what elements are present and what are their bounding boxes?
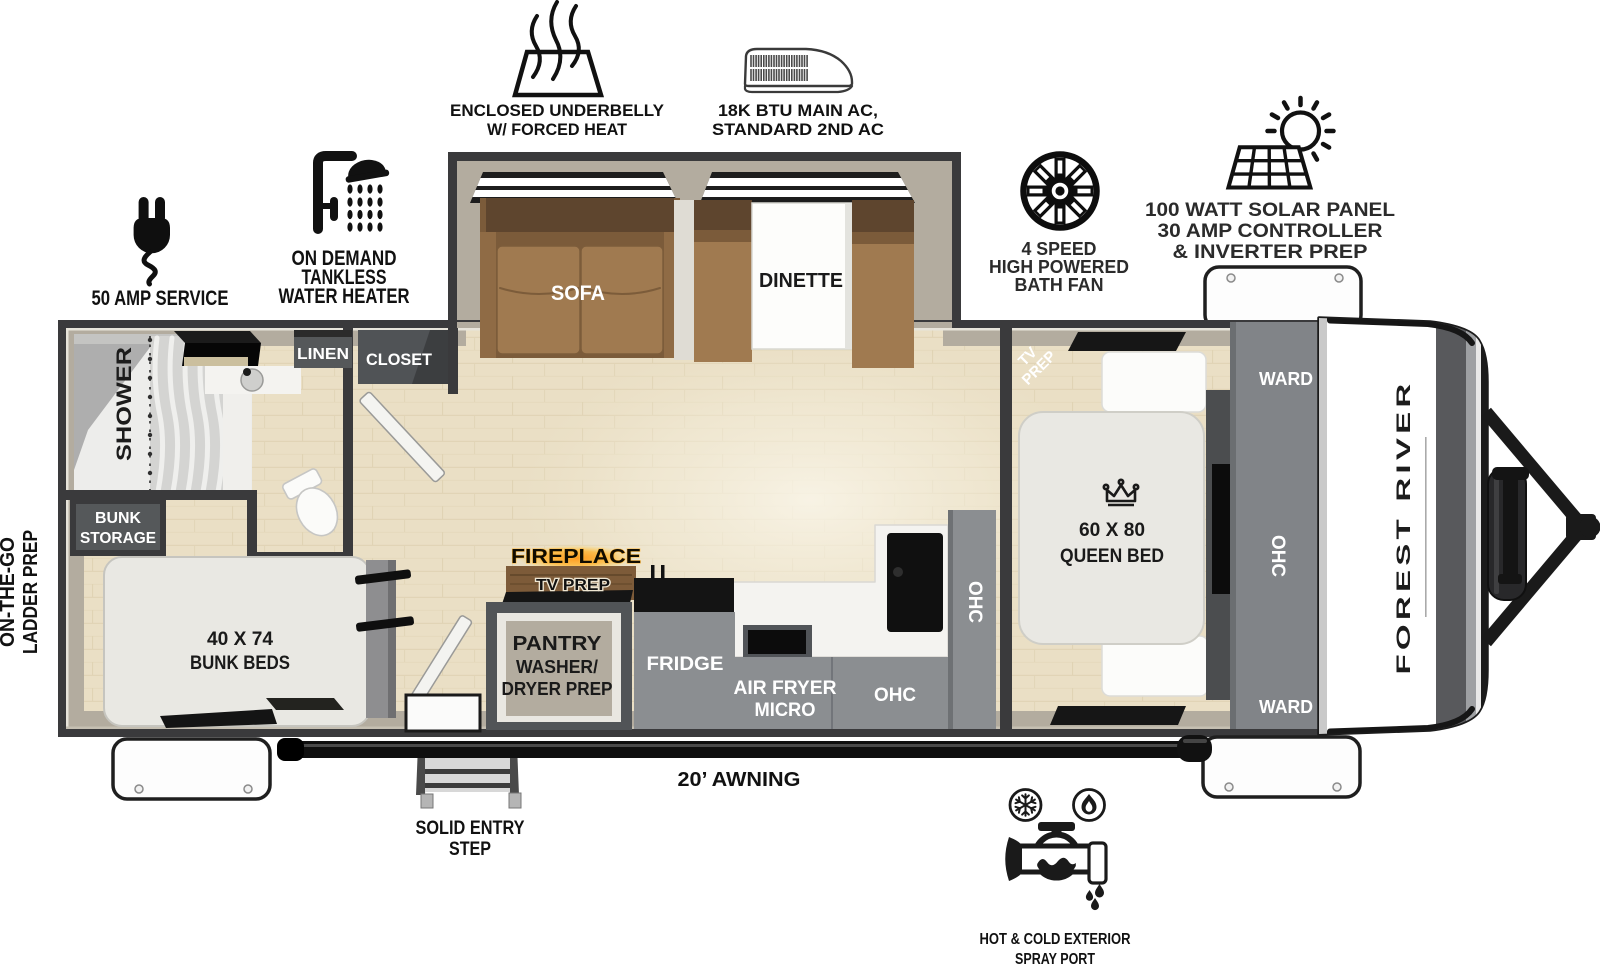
- svg-text:DRYER PREP: DRYER PREP: [502, 679, 613, 699]
- svg-text:WATER HEATER: WATER HEATER: [279, 285, 410, 308]
- svg-text:WASHER/: WASHER/: [516, 657, 598, 677]
- svg-text:WARD: WARD: [1259, 369, 1313, 389]
- svg-text:OHC: OHC: [1267, 535, 1288, 577]
- svg-text:40 X 74: 40 X 74: [207, 629, 273, 650]
- svg-text:18K BTU MAIN AC,: 18K BTU MAIN AC,: [718, 101, 878, 120]
- svg-text:BUNK BEDS: BUNK BEDS: [190, 653, 290, 674]
- svg-text:PANTRY: PANTRY: [513, 633, 603, 655]
- svg-text:MICRO: MICRO: [755, 700, 816, 721]
- svg-text:& INVERTER PREP: & INVERTER PREP: [1173, 242, 1368, 263]
- svg-text:HIGH POWERED: HIGH POWERED: [989, 257, 1129, 277]
- svg-text:AIR FRYER: AIR FRYER: [734, 678, 837, 699]
- svg-text:FIREPLACE: FIREPLACE: [511, 546, 641, 568]
- svg-text:QUEEN BED: QUEEN BED: [1060, 546, 1164, 567]
- svg-text:ENCLOSED UNDERBELLY: ENCLOSED UNDERBELLY: [450, 101, 665, 120]
- svg-text:WARD: WARD: [1259, 697, 1313, 717]
- svg-text:20’ AWNING: 20’ AWNING: [678, 769, 801, 791]
- svg-text:CLOSET: CLOSET: [366, 350, 433, 369]
- svg-text:BATH FAN: BATH FAN: [1015, 275, 1104, 295]
- svg-text:STANDARD 2ND AC: STANDARD 2ND AC: [712, 120, 884, 139]
- svg-text:HOT & COLD EXTERIOR: HOT & COLD EXTERIOR: [980, 931, 1131, 948]
- svg-text:60 X 80: 60 X 80: [1079, 520, 1145, 541]
- svg-text:LINEN: LINEN: [297, 346, 349, 363]
- svg-text:SOFA: SOFA: [551, 282, 605, 305]
- svg-text:SHOWER: SHOWER: [113, 347, 136, 461]
- svg-text:DINETTE: DINETTE: [759, 270, 843, 292]
- svg-text:OHC: OHC: [964, 581, 985, 623]
- svg-text:SPRAY PORT: SPRAY PORT: [1015, 951, 1095, 968]
- svg-text:100 WATT SOLAR PANEL: 100 WATT SOLAR PANEL: [1145, 200, 1395, 221]
- svg-text:FOREST RIVER: FOREST RIVER: [1393, 380, 1415, 675]
- svg-text:BUNK: BUNK: [95, 510, 141, 527]
- svg-text:FRIDGE: FRIDGE: [647, 654, 724, 675]
- svg-text:TV PREP: TV PREP: [536, 577, 610, 594]
- svg-text:50 AMP SERVICE: 50 AMP SERVICE: [92, 287, 229, 310]
- svg-text:W/ FORCED HEAT: W/ FORCED HEAT: [487, 120, 628, 139]
- svg-text:STORAGE: STORAGE: [80, 530, 156, 547]
- svg-text:SOLID ENTRY: SOLID ENTRY: [416, 818, 525, 839]
- svg-text:ON-THE-GO: ON-THE-GO: [0, 537, 19, 647]
- svg-text:4 SPEED: 4 SPEED: [1022, 239, 1097, 259]
- svg-text:30 AMP CONTROLLER: 30 AMP CONTROLLER: [1158, 221, 1383, 242]
- svg-text:LADDER PREP: LADDER PREP: [20, 530, 42, 654]
- svg-text:STEP: STEP: [449, 839, 491, 860]
- svg-text:OHC: OHC: [874, 685, 916, 706]
